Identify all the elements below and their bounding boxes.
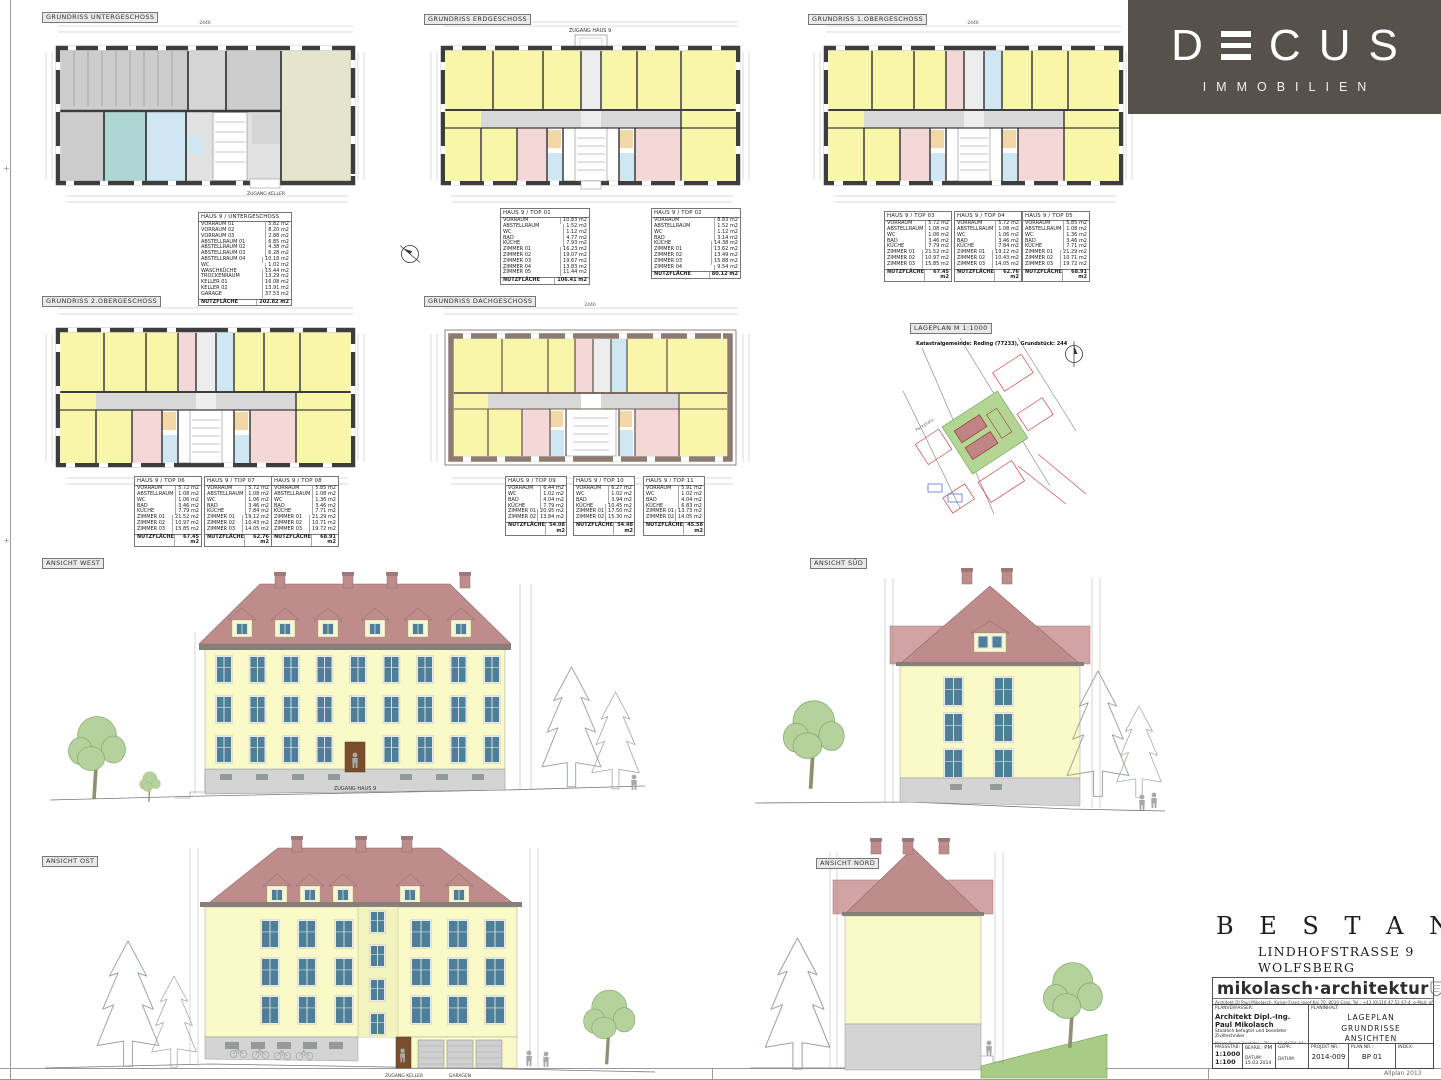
table-total-row: NUTZFLÄCHE67.45 m2 <box>135 534 201 547</box>
parkplatz-label: Parkplatz <box>914 417 935 434</box>
elevation-sued-drawing <box>740 566 1170 814</box>
area-table-top07: HAUS 9 / TOP 07VORRAUM5.72 m2ABSTELLRAUM… <box>204 476 272 547</box>
architect-name: Architekt Dipl.-Ing. Paul Mikolasch <box>1215 1013 1306 1029</box>
table-total-row: NUTZFLÄCHE67.45 m2 <box>885 269 951 282</box>
plannr-value: BP 01 <box>1351 1053 1393 1061</box>
table-row: ZIMMER 0314.05 m2 <box>205 527 271 533</box>
plan-title-dach: GRUNDRISS DACHGESCHOSS <box>424 296 536 307</box>
lageplan-subtitle: Katastralgemeinde: Reding (77233), Grund… <box>916 341 1067 347</box>
edge-tick: + <box>3 164 10 173</box>
table-row: ZIMMER 0319.72 m2 <box>272 527 338 533</box>
planinhalt-item: GRUNDRISSE <box>1311 1024 1431 1035</box>
titleblock-projekt: PROJEKT NR.: 2014-009 <box>1309 1044 1349 1068</box>
north-arrow-icon <box>388 232 432 276</box>
table-row: ZIMMER 0319.72 m2 <box>1023 262 1089 268</box>
area-table-top05: HAUS 9 / TOP 05VORRAUM5.85 m2ABSTELLRAUM… <box>1022 211 1090 282</box>
decus-logo: D C U S IMMOBILIEN <box>1128 0 1441 114</box>
elevation-label-nord: ANSICHT NORD <box>816 858 879 869</box>
allplan-note: Allplan 2013 <box>1384 1070 1422 1077</box>
main-title: B E S T A N D S P L A N <box>1216 912 1432 940</box>
area-table-top04: HAUS 9 / TOP 04VORRAUM5.72 m2ABSTELLRAUM… <box>954 211 1022 282</box>
decus-letter: S <box>1368 21 1397 71</box>
plan-dach-drawing: 2446 <box>423 300 753 495</box>
plan-erdgeschoss-drawing: ZUGANG HAUS 9 <box>423 18 753 213</box>
table-row: ZIMMER 0315.85 m2 <box>135 527 201 533</box>
planinhalt-item: LAGEPLAN <box>1311 1013 1431 1024</box>
titleblock-index: INDEX: <box>1396 1044 1433 1068</box>
titleblock-planinhalt: PLANINHALT: LAGEPLAN GRUNDRISSE ANSICHTE… <box>1309 1005 1433 1044</box>
elevation-label-west: ANSICHT WEST <box>42 558 104 569</box>
projekt-label: PROJEKT NR.: <box>1311 1045 1346 1050</box>
table-total-row: NUTZFLÄCHE106.41 m2 <box>501 277 589 284</box>
plan-untergeschoss-drawing: 2446 ZUGANG KELLER <box>38 18 368 213</box>
plannr-label: PLAN NR.: <box>1351 1045 1393 1050</box>
datum-label: DATUM: <box>1278 1057 1306 1062</box>
garagen-label: GARAGEN <box>449 1073 471 1079</box>
decus-letter: D <box>1171 21 1203 71</box>
table-row: ZIMMER 0214.05 m2 <box>644 515 704 521</box>
area-table-top02: HAUS 9 / TOP 02VORRAUM8.83 m2ABSTELLRAUM… <box>651 208 741 279</box>
zugang-keller-label: ZUGANG KELLER <box>385 1073 423 1079</box>
area-table-top01: HAUS 9 / TOP 01VORRAUM10.83 m2ABSTELLRAU… <box>500 208 590 285</box>
table-row: ZIMMER 0215.30 m2 <box>574 515 634 521</box>
decus-letter: C <box>1269 21 1301 71</box>
elevation-label-ost: ANSICHT OST <box>42 856 98 867</box>
titleblock-planverfasser: PLANVERFASSER: Architekt Dipl.-Ing. Paul… <box>1213 1005 1309 1044</box>
table-total-row: NUTZFLÄCHE80.12 m2 <box>652 271 740 278</box>
plan-title-untergeschoss: GRUNDRISS UNTERGESCHOSS <box>42 12 158 23</box>
area-table-top08: HAUS 9 / TOP 08VORRAUM5.85 m2ABSTELLRAUM… <box>271 476 339 547</box>
titleblock-bearb: BEARB.: PM DATUM: 15.03.2014 <box>1243 1044 1276 1068</box>
plan-title-og2: GRUNDRISS 2.OBERGESCHOSS <box>42 296 161 307</box>
address-street: LINDHOFSTRASSE 9 <box>1258 944 1415 960</box>
edge-tick: + <box>3 536 10 545</box>
elevation-west-drawing: ZUGANG HAUS 9 <box>45 572 650 812</box>
studio-logo-bar: mikolasch·architektur Architekt DI Paul … <box>1212 977 1434 1006</box>
zugang-haus-label: ZUGANG HAUS 9 <box>334 786 376 792</box>
plan-og1-drawing: 2446 <box>806 18 1136 213</box>
area-table-top11: HAUS 9 / TOP 11VORRAUM5.91 m2WC1.02 m2BA… <box>643 476 705 536</box>
studio-wordmark: mikolasch·architektur <box>1217 979 1429 998</box>
address-city: WOLFSBERG <box>1258 960 1415 976</box>
table-total-row: NUTZFLÄCHE62.76 m2 <box>205 534 271 547</box>
elevation-nord-drawing <box>745 838 1107 1078</box>
titleblock-plannr: PLAN NR.: BP 01 <box>1349 1044 1396 1068</box>
index-label: INDEX: <box>1398 1045 1431 1050</box>
table-total-row: NUTZFLÄCHE68.91 m2 <box>1023 269 1089 282</box>
dim-label: 2446 <box>584 302 596 308</box>
table-row: ZIMMER 0315.85 m2 <box>885 262 951 268</box>
project-address: LINDHOFSTRASSE 9 WOLFSBERG <box>1258 944 1415 975</box>
decus-wordmark: D C U S <box>1162 21 1407 71</box>
elevation-label-sued: ANSICHT SÜD <box>810 558 867 569</box>
titleblock-gepr: GEPR.: DATUM: <box>1276 1044 1309 1068</box>
lageplan-title: LAGEPLAN M 1:1000 <box>910 323 992 334</box>
planinhalt-label: PLANINHALT: <box>1311 1006 1431 1011</box>
lageplan-drawing: Parkplatz <box>898 336 1093 518</box>
table-row: GARAGE37.53 m2 <box>199 292 291 298</box>
table-total-row: NUTZFLÄCHE202.82 m2 <box>199 299 291 306</box>
table-total-row: NUTZFLÄCHE45.58 m2 <box>644 522 704 535</box>
decus-subtitle: IMMOBILIEN <box>1193 80 1377 94</box>
sheet-divider-2 <box>1208 1068 1209 1080</box>
massstab-value1: 1:1000 <box>1215 1050 1240 1058</box>
area-table-top03: HAUS 9 / TOP 03VORRAUM5.72 m2ABSTELLRAUM… <box>884 211 952 282</box>
area-table-top09: HAUS 9 / TOP 09VORRAUM6.44 m2WC1.02 m2BA… <box>505 476 567 536</box>
table-row: ZIMMER 049.54 m2 <box>652 265 740 271</box>
table-total-row: NUTZFLÄCHE54.08 m2 <box>506 522 566 535</box>
titleblock-massstab: MASSSTAB: 1:1000 1:100 <box>1213 1044 1243 1068</box>
architect-subtitle: Staatlich befugter und beeideter Zivilte… <box>1215 1029 1306 1039</box>
decus-e-bars-icon <box>1221 29 1251 63</box>
planinhalt-item: ANSICHTEN <box>1311 1034 1431 1044</box>
gepr-label: GEPR.: <box>1278 1045 1306 1050</box>
area-table-ug: HAUS 9 / UNTERGESCHOSSVORRAUM 015.82 m2V… <box>198 212 292 306</box>
zugang-haus-label: ZUGANG HAUS 9 <box>569 28 611 34</box>
plan-title-og1: GRUNDRISS 1.OBERGESCHOSS <box>808 14 927 25</box>
sheet-divider-1 <box>712 1068 713 1080</box>
decus-letter: U <box>1319 21 1351 71</box>
dim-label: 2446 <box>967 20 979 26</box>
planverfasser-label: PLANVERFASSER: <box>1215 1006 1306 1011</box>
area-table-top06: HAUS 9 / TOP 06VORRAUM5.72 m2ABSTELLRAUM… <box>134 476 202 547</box>
table-row: ZIMMER 0213.84 m2 <box>506 515 566 521</box>
table-total-row: NUTZFLÄCHE54.48 m2 <box>574 522 634 535</box>
plan-title-erdgeschoss: GRUNDRISS ERDGESCHOSS <box>424 14 531 25</box>
table-row: ZIMMER 0314.05 m2 <box>955 262 1021 268</box>
datum-value: 15.03.2014 <box>1245 1061 1273 1066</box>
titleblock: PLANVERFASSER: Architekt Dipl.-Ing. Paul… <box>1212 1004 1434 1069</box>
bearb-label: BEARB.: <box>1245 1046 1263 1051</box>
plan-og2-drawing: 2446 <box>38 300 368 495</box>
crest-icon <box>1429 981 1441 997</box>
dim-label: 2446 <box>199 20 211 26</box>
massstab-value2: 1:100 <box>1215 1058 1240 1066</box>
projekt-value: 2014-009 <box>1311 1053 1346 1061</box>
plan-sheet: + + D C U S IMMOBILIEN GRUNDRISS UNTERGE… <box>0 0 1441 1080</box>
zugang-keller-label: ZUGANG KELLER <box>247 191 285 197</box>
elevation-ost-drawing: ZUGANG KELLER GARAGEN <box>40 836 665 1080</box>
area-table-top10: HAUS 9 / TOP 10VORRAUM6.27 m2WC1.02 m2BA… <box>573 476 635 536</box>
sheet-border-left <box>10 0 11 1080</box>
bearb-value: PM <box>1264 1045 1272 1051</box>
table-total-row: NUTZFLÄCHE68.91 m2 <box>272 534 338 547</box>
table-total-row: NUTZFLÄCHE62.76 m2 <box>955 269 1021 282</box>
table-row: ZIMMER 0511.44 m2 <box>501 270 589 276</box>
